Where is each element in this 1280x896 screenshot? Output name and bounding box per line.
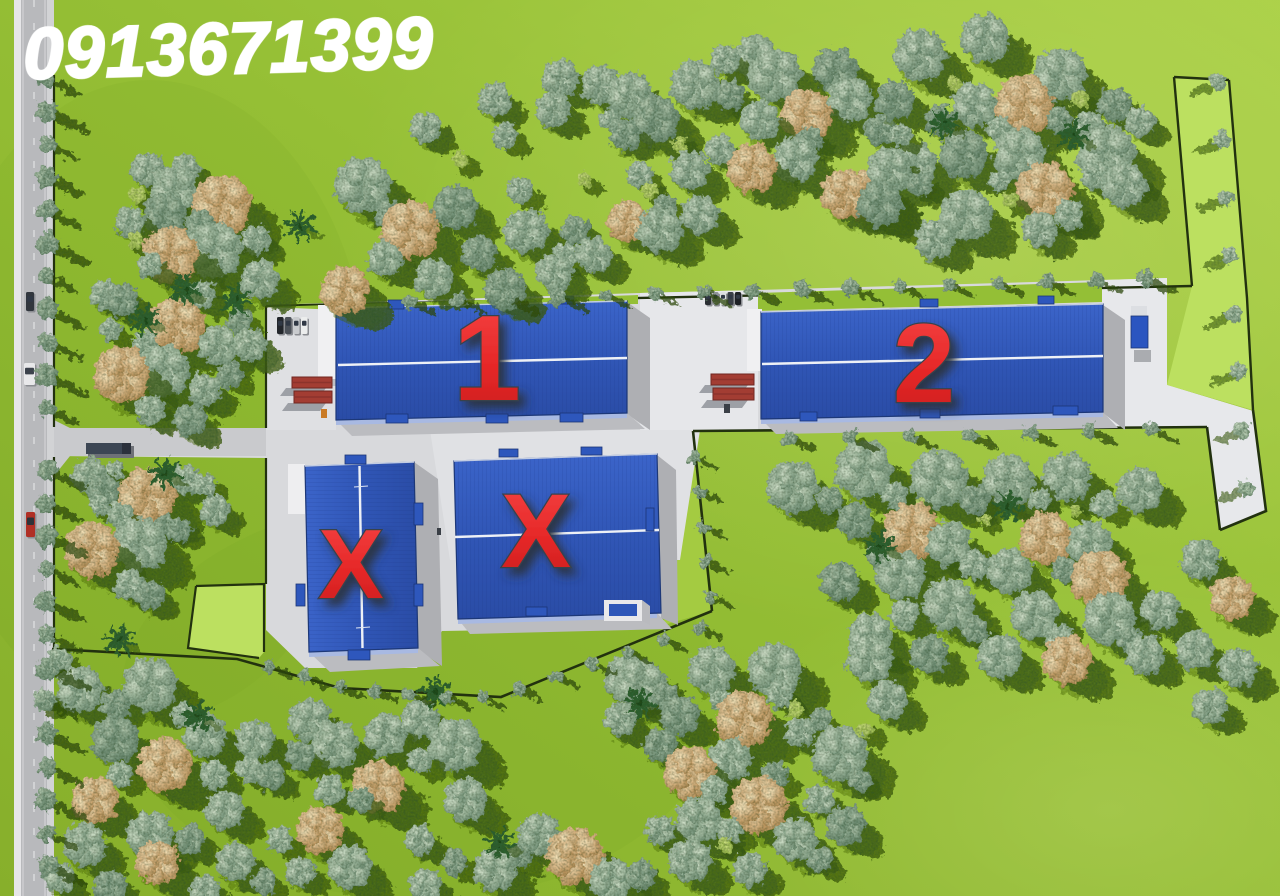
svg-text:0913671399: 0913671399 (22, 4, 435, 95)
svg-text:X: X (501, 473, 571, 590)
svg-text:2: 2 (893, 301, 955, 426)
svg-text:X: X (318, 509, 383, 619)
svg-text:1: 1 (453, 290, 521, 426)
